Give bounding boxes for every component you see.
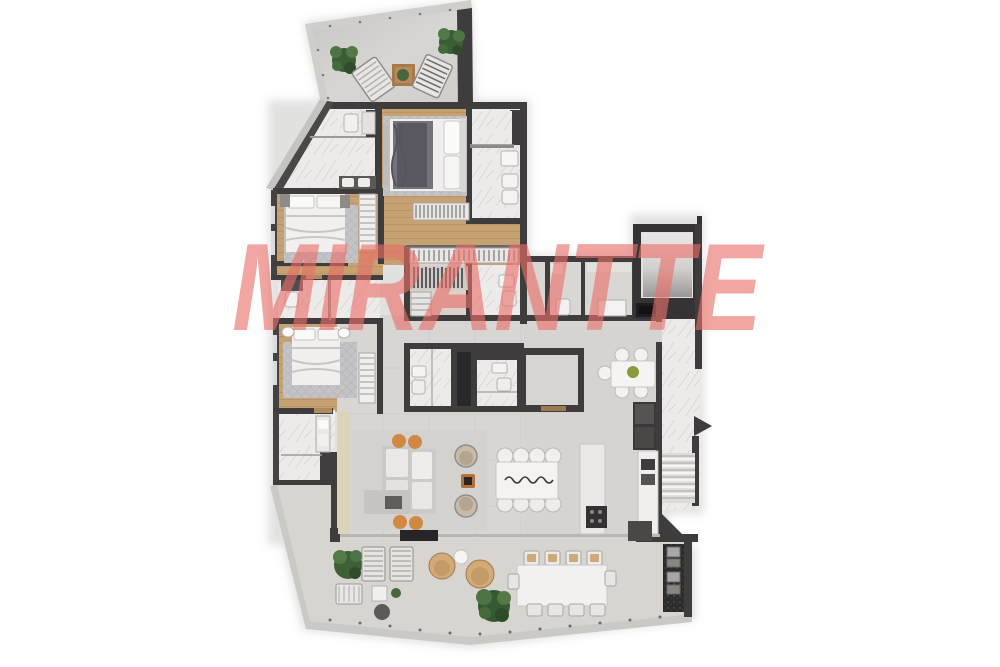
svg-text:MIRANTTE: MIRANTTE [232,219,765,357]
